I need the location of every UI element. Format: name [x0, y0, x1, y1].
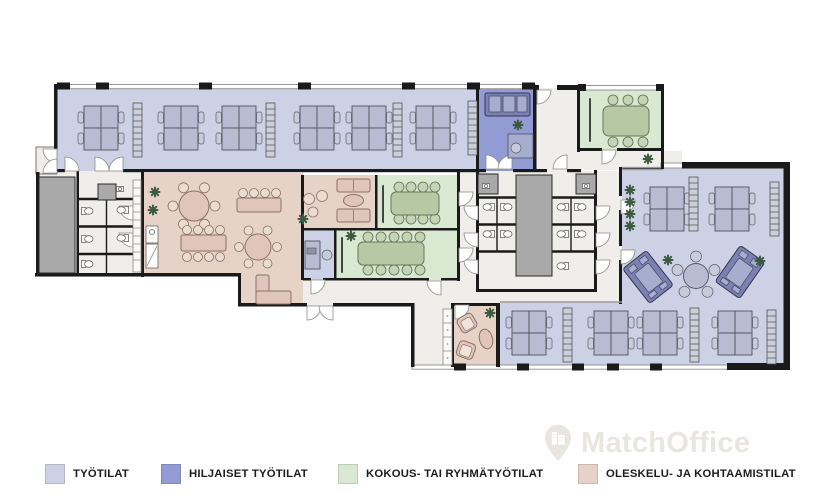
shelf [266, 103, 275, 157]
plant-icon [151, 188, 160, 197]
plant-icon [626, 222, 635, 231]
plant-icon [626, 186, 635, 195]
zone-open-office-top [57, 86, 535, 171]
legend: TYÖTILAT HILJAISET TYÖTILAT KOKOUS- TAI … [0, 460, 825, 492]
round-table [684, 264, 709, 289]
stairwell [39, 177, 75, 273]
desk [305, 241, 320, 269]
floor-plan [0, 0, 825, 418]
shelf [563, 308, 572, 362]
plant-icon [756, 257, 765, 266]
watermark: MatchOffice [541, 423, 750, 463]
shelf [133, 103, 142, 157]
legend-swatch-lounge [578, 464, 598, 484]
desk-cluster [294, 106, 340, 150]
desk-cluster [644, 187, 690, 231]
legend-label-meeting: KOKOUS- TAI RYHMÄTYÖTILAT [366, 468, 543, 480]
shelf [690, 308, 699, 362]
legend-label-work: TYÖTILAT [73, 468, 129, 480]
elevator-shaft [516, 175, 552, 276]
legend-item-work: TYÖTILAT [45, 464, 129, 484]
pouf [308, 207, 318, 217]
legend-label-quiet: HILJAISET TYÖTILAT [189, 468, 308, 480]
desk-cluster [506, 311, 552, 355]
legend-item-lounge: OLESKELU- JA KOHTAAMISTILAT [578, 464, 796, 484]
round-table [179, 191, 209, 221]
shelf [689, 177, 698, 231]
plant-icon [644, 155, 653, 164]
legend-swatch-quiet [161, 464, 181, 484]
chair [511, 143, 521, 153]
plant-icon [514, 121, 523, 130]
shelf [468, 101, 477, 155]
long-table [237, 198, 281, 212]
matchoffice-pin-icon [541, 423, 575, 463]
round-table [245, 234, 271, 260]
legend-item-quiet: HILJAISET TYÖTILAT [161, 464, 308, 484]
floor-plan-page: TYÖTILAT HILJAISET TYÖTILAT KOKOUS- TAI … [0, 0, 825, 500]
conference-table [358, 242, 424, 265]
storage-ladder [133, 180, 141, 272]
desk-cluster [588, 311, 634, 355]
meeting-table [391, 192, 439, 215]
long-table [181, 235, 226, 251]
desk-cluster [712, 311, 758, 355]
shelf [767, 310, 776, 364]
desk-cluster [158, 106, 204, 150]
plant-icon [664, 256, 673, 265]
pouf [317, 191, 328, 202]
shelf [393, 103, 402, 157]
plant-icon [299, 215, 308, 224]
chair [322, 250, 332, 260]
legend-item-meeting: KOKOUS- TAI RYHMÄTYÖTILAT [338, 464, 543, 484]
desk-cluster [709, 187, 755, 231]
desk-cluster [346, 106, 392, 150]
plant-icon [626, 210, 635, 219]
plant-icon [626, 198, 635, 207]
plant-icon [149, 206, 158, 215]
wardrobe [443, 309, 452, 365]
legend-label-lounge: OLESKELU- JA KOHTAAMISTILAT [606, 468, 796, 480]
legend-swatch-meeting [338, 464, 358, 484]
desk-cluster [410, 106, 456, 150]
meeting-table [603, 106, 649, 136]
desk-cluster [78, 106, 124, 150]
pouf [304, 194, 315, 205]
desk-cluster [637, 311, 683, 355]
legend-swatch-work [45, 464, 65, 484]
shelf [770, 182, 779, 236]
plant-icon [347, 232, 356, 241]
watermark-brand: MatchOffice [581, 427, 750, 460]
desk-cluster [216, 106, 262, 150]
coffee-table [344, 195, 364, 207]
plant-icon [486, 309, 495, 318]
